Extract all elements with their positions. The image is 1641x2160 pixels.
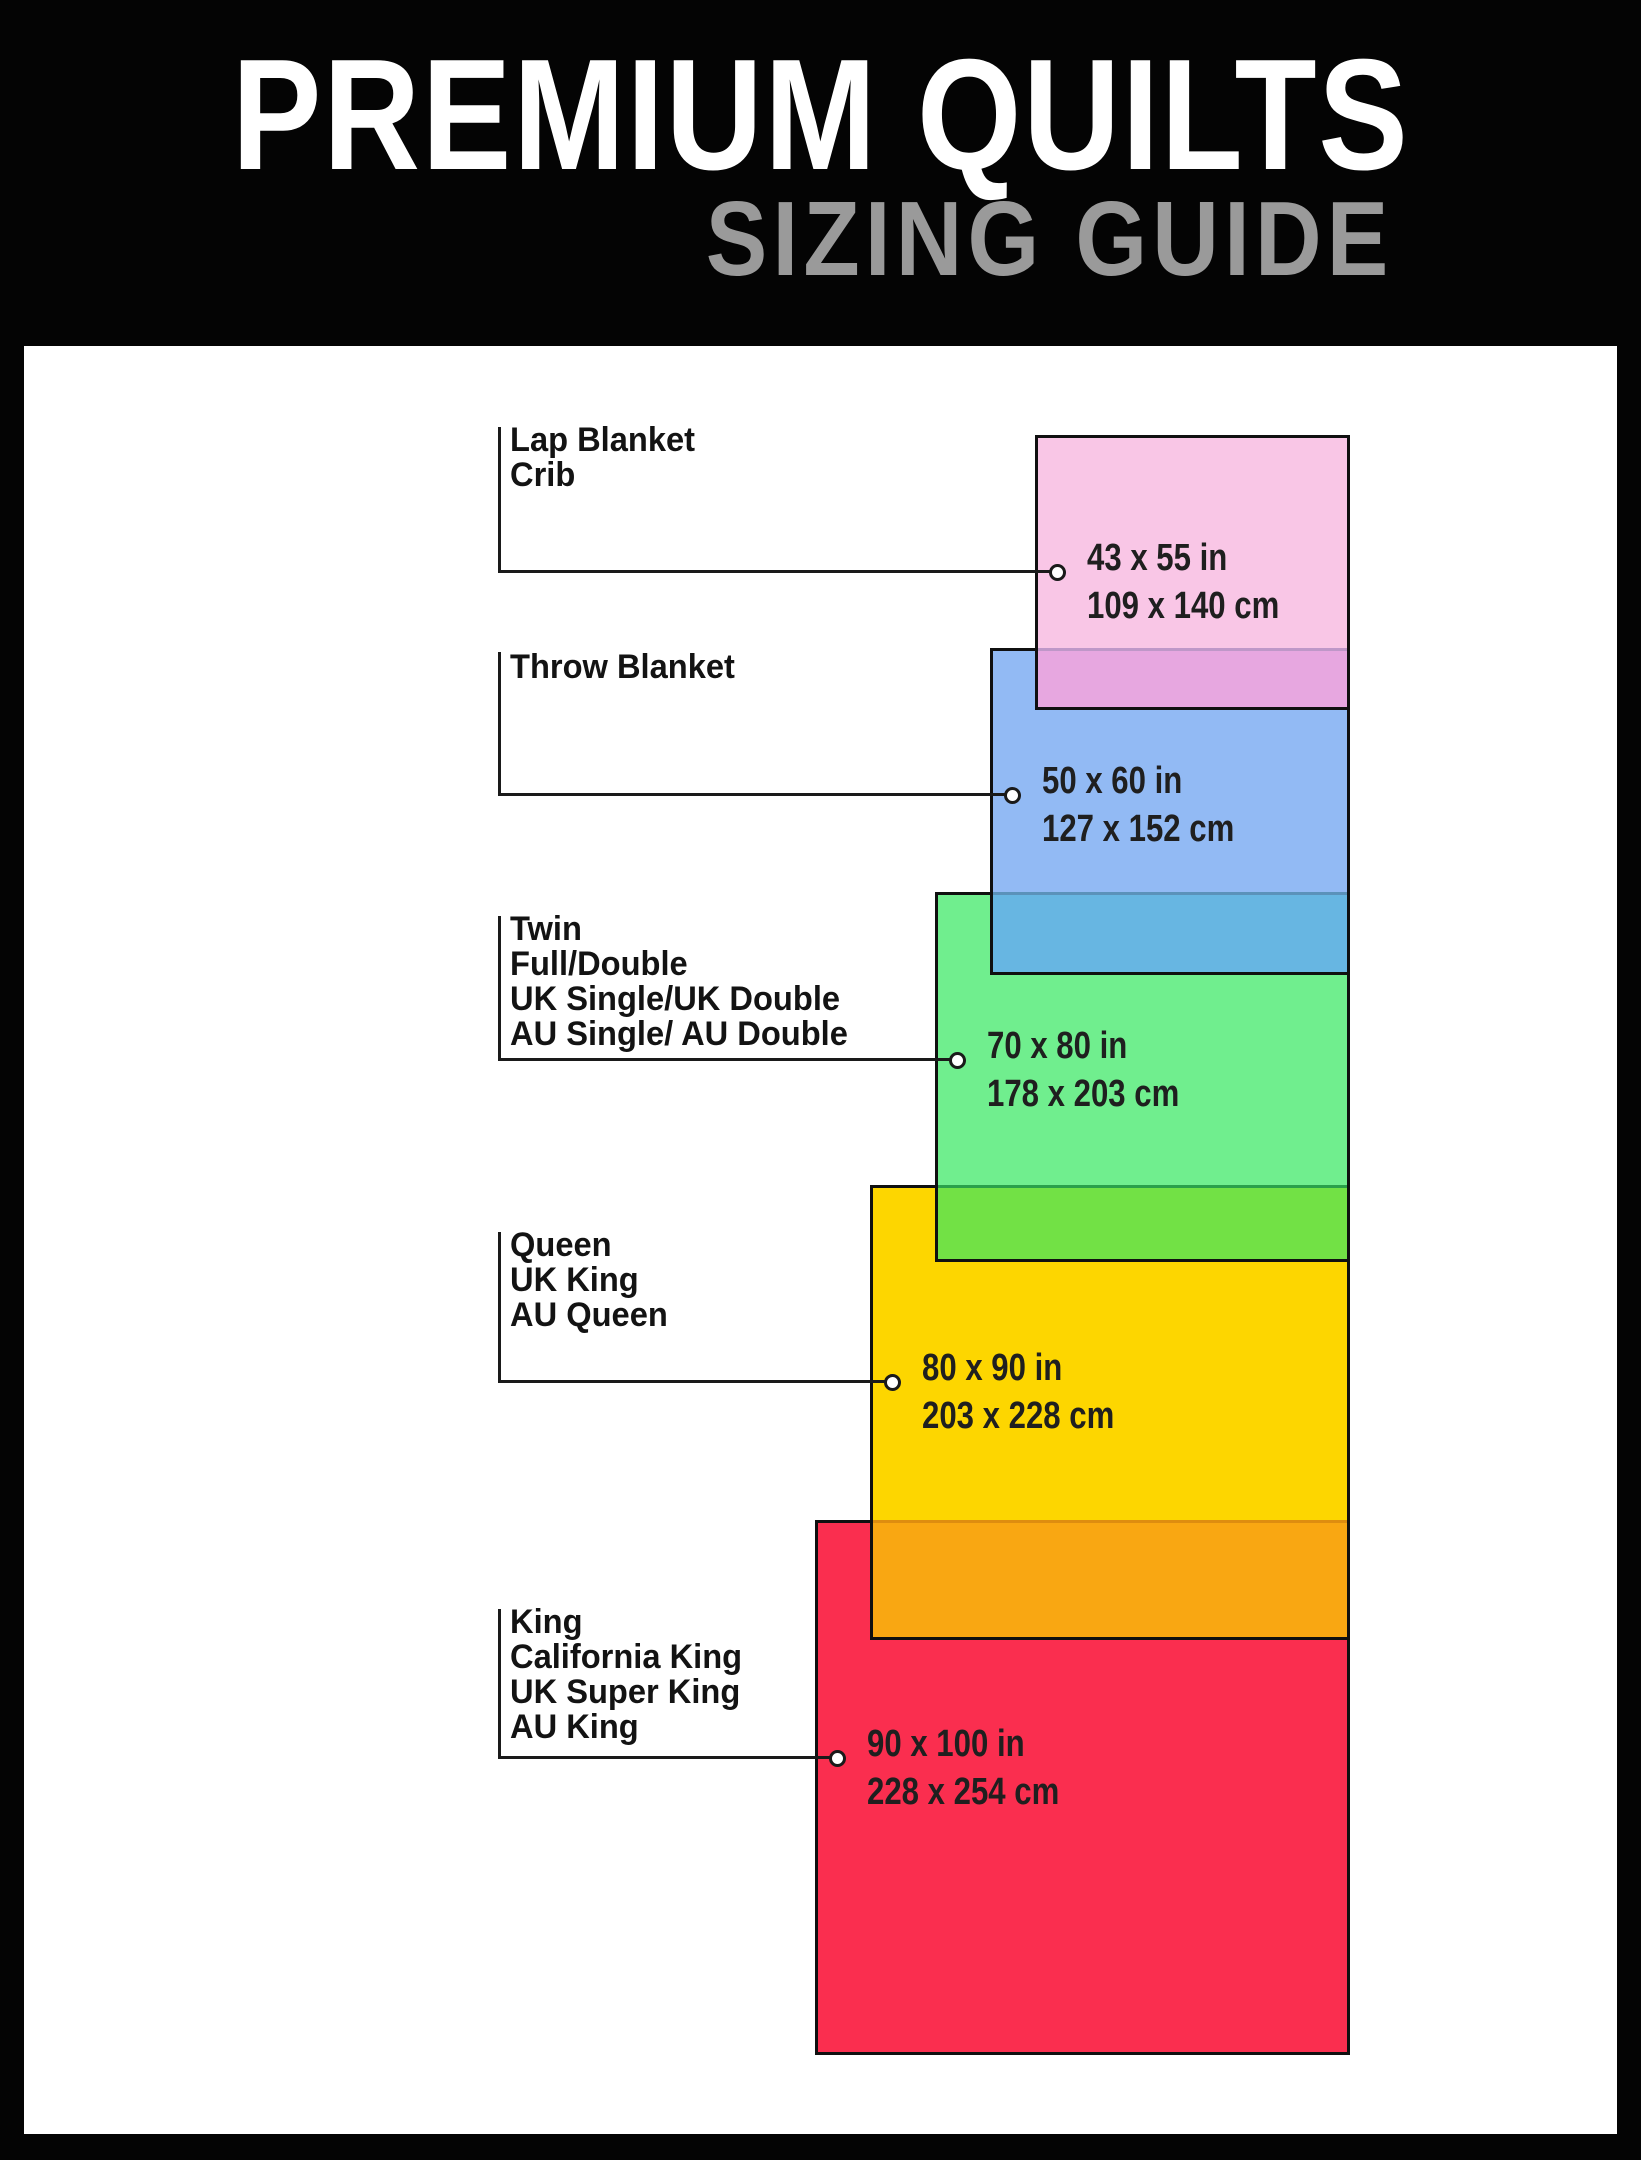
measurement-cm: 127 x 152 cm bbox=[1042, 805, 1234, 853]
measurement-queen: 80 x 90 in 203 x 228 cm bbox=[922, 1344, 1114, 1440]
measurement-king: 90 x 100 in 228 x 254 cm bbox=[867, 1720, 1059, 1816]
connector-vline-throw-blanket bbox=[498, 652, 501, 796]
measurement-cm: 203 x 228 cm bbox=[922, 1392, 1114, 1440]
connector-dot-twin bbox=[949, 1052, 966, 1069]
connector-vline-lap-blanket bbox=[498, 427, 501, 573]
measurement-throw-blanket: 50 x 60 in 127 x 152 cm bbox=[1042, 757, 1234, 853]
connector-vline-queen bbox=[498, 1232, 501, 1383]
connector-vline-king bbox=[498, 1609, 501, 1759]
overlap-throw-over-twin bbox=[993, 892, 1347, 972]
connector-hline-lap-blanket bbox=[498, 570, 1057, 573]
page-title: PREMIUM QUILTS bbox=[232, 36, 1410, 194]
label-lap-blanket-crib: Lap Blanket Crib bbox=[510, 423, 695, 493]
label-queen-uk-king-au-queen: Queen UK King AU Queen bbox=[510, 1228, 668, 1333]
connector-hline-twin bbox=[498, 1058, 957, 1061]
measurement-inches: 50 x 60 in bbox=[1042, 757, 1234, 805]
connector-dot-queen bbox=[884, 1374, 901, 1391]
label-king-california-king: King California King UK Super King AU Ki… bbox=[510, 1605, 742, 1745]
measurement-twin: 70 x 80 in 178 x 203 cm bbox=[987, 1022, 1179, 1118]
overlap-twin-over-queen bbox=[938, 1185, 1347, 1259]
connector-hline-queen bbox=[498, 1380, 892, 1383]
measurement-cm: 228 x 254 cm bbox=[867, 1768, 1059, 1816]
overlap-queen-over-king bbox=[873, 1520, 1347, 1637]
infographic: PREMIUM QUILTS SIZING GUIDE Lap Blanket … bbox=[0, 0, 1641, 2160]
measurement-inches: 90 x 100 in bbox=[867, 1720, 1059, 1768]
connector-dot-throw-blanket bbox=[1004, 787, 1021, 804]
overlap-lap-over-throw bbox=[1038, 648, 1347, 707]
connector-hline-king bbox=[498, 1756, 837, 1759]
label-throw-blanket: Throw Blanket bbox=[510, 650, 735, 685]
connector-dot-lap-blanket bbox=[1049, 564, 1066, 581]
connector-dot-king bbox=[829, 1750, 846, 1767]
measurement-inches: 70 x 80 in bbox=[987, 1022, 1179, 1070]
measurement-inches: 80 x 90 in bbox=[922, 1344, 1114, 1392]
measurement-cm: 109 x 140 cm bbox=[1087, 582, 1279, 630]
label-twin-full-double: Twin Full/Double UK Single/UK Double AU … bbox=[510, 912, 848, 1052]
measurement-inches: 43 x 55 in bbox=[1087, 534, 1279, 582]
connector-hline-throw-blanket bbox=[498, 793, 1012, 796]
page-subtitle: SIZING GUIDE bbox=[706, 186, 1394, 292]
connector-vline-twin bbox=[498, 916, 501, 1061]
measurement-cm: 178 x 203 cm bbox=[987, 1070, 1179, 1118]
measurement-lap-blanket: 43 x 55 in 109 x 140 cm bbox=[1087, 534, 1279, 630]
